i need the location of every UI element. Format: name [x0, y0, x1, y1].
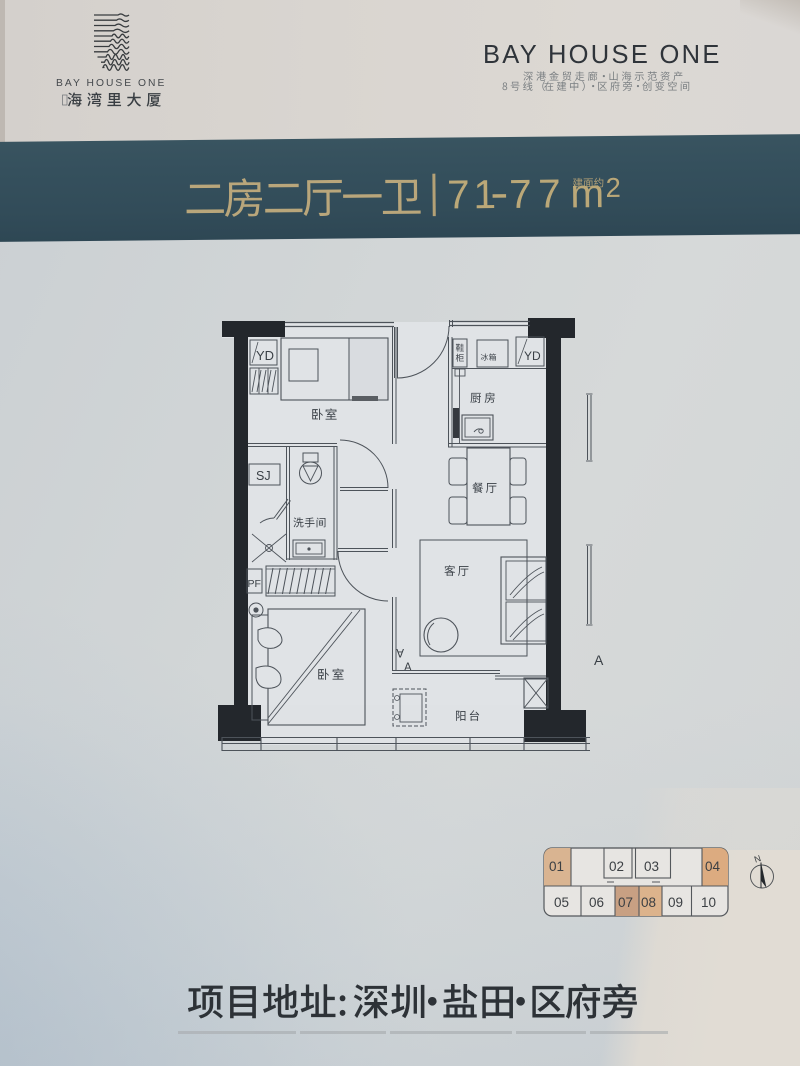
svg-text:71: 71 [447, 171, 500, 218]
svg-text:05: 05 [554, 895, 569, 910]
svg-text:A: A [396, 646, 404, 658]
svg-text:YD: YD [524, 349, 541, 363]
svg-text:m: m [570, 170, 604, 216]
svg-text:10: 10 [701, 895, 716, 910]
svg-text:A: A [594, 652, 604, 668]
svg-text:77: 77 [509, 170, 568, 217]
svg-text:07: 07 [618, 895, 633, 910]
svg-text:04: 04 [705, 859, 721, 874]
svg-text:YD: YD [256, 348, 274, 363]
svg-text:01: 01 [549, 859, 564, 874]
svg-text:06: 06 [589, 895, 604, 910]
svg-text:A: A [404, 662, 412, 674]
svg-text:09: 09 [668, 895, 683, 910]
svg-text:N: N [753, 853, 762, 865]
svg-text:SJ: SJ [256, 469, 271, 483]
svg-text:PF: PF [248, 578, 261, 590]
svg-text:2: 2 [605, 172, 621, 203]
svg-text:03: 03 [644, 859, 659, 874]
svg-text:02: 02 [609, 859, 624, 874]
svg-text:08: 08 [641, 895, 656, 910]
